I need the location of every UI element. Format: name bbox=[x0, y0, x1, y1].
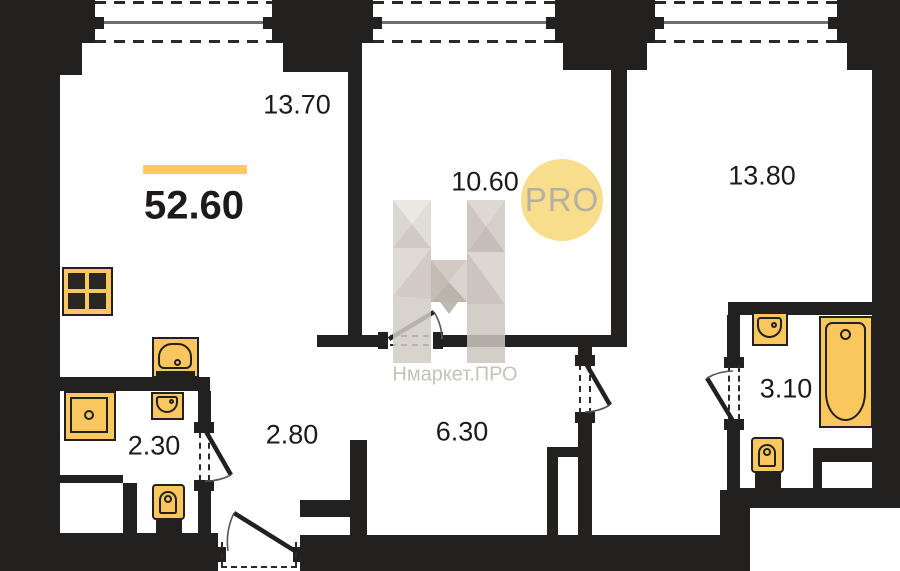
door-arc bbox=[585, 405, 610, 412]
door-leaf bbox=[204, 428, 231, 475]
room-area-label-10-60: 10.60 bbox=[451, 167, 519, 198]
door-leaf bbox=[707, 378, 733, 421]
door-arc bbox=[227, 513, 234, 551]
brand-h-logo bbox=[393, 200, 505, 363]
total-area-accent-bar bbox=[143, 165, 247, 174]
room-area-label-13-80: 13.80 bbox=[728, 161, 796, 192]
door-leaf bbox=[585, 362, 610, 405]
door-arc bbox=[707, 371, 733, 378]
brand-pro-label: PRO bbox=[525, 181, 600, 219]
brand-pro-badge: PRO bbox=[521, 159, 603, 241]
door-arc bbox=[205, 475, 231, 481]
room-area-label-6-30: 6.30 bbox=[436, 417, 489, 448]
door-leaf bbox=[234, 513, 295, 551]
total-area-label: 52.60 bbox=[144, 184, 244, 229]
floor-plan: PRO 52.60 13.70 10.60 13.80 2.30 2.80 6.… bbox=[0, 0, 900, 571]
room-area-label-13-70: 13.70 bbox=[263, 90, 331, 121]
room-area-label-2-30: 2.30 bbox=[128, 431, 181, 462]
room-area-label-3-10: 3.10 bbox=[760, 374, 813, 405]
room-area-label-2-80: 2.80 bbox=[266, 420, 319, 451]
brand-watermark-text: Нмаркет.ПРО bbox=[392, 364, 517, 387]
